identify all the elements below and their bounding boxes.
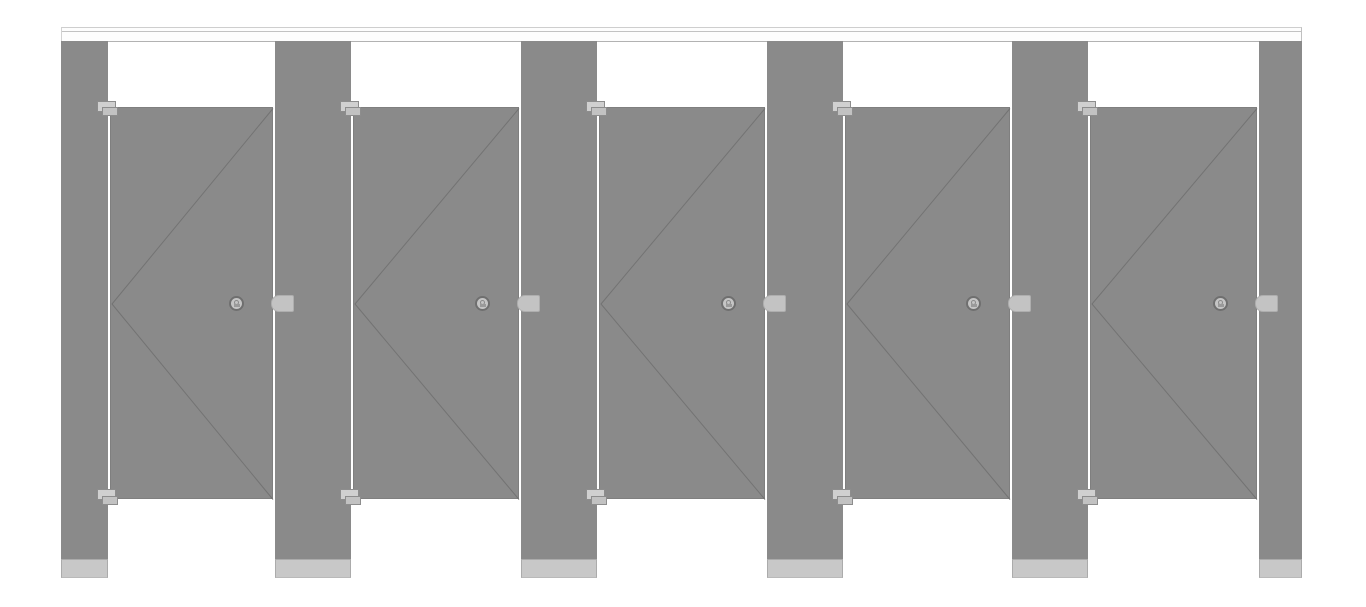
door-hinge-bottom-leaf <box>1082 496 1098 505</box>
headrail-inner-line <box>62 31 1301 32</box>
latch-knob-turn <box>1218 304 1224 307</box>
latch-knob-turn <box>726 304 732 307</box>
pilaster-shoe <box>1012 559 1088 578</box>
latch-keeper <box>1255 295 1278 312</box>
door-hinge-bottom-leaf <box>102 496 118 505</box>
stall-door <box>845 107 1010 499</box>
door-swing-lines <box>600 108 766 500</box>
stall-door <box>110 107 273 499</box>
headrail <box>61 27 1302 42</box>
pilaster-shoe <box>275 559 351 578</box>
pilaster-shoe <box>521 559 597 578</box>
door-latch-knob <box>721 296 736 311</box>
door-hinge-top-leaf <box>345 107 361 116</box>
door-latch-knob <box>229 296 244 311</box>
pilaster-shoe <box>61 559 108 578</box>
stall-door <box>1090 107 1257 499</box>
door-swing-lines <box>111 108 274 500</box>
door-swing-lines <box>846 108 1011 500</box>
pilaster-shoe <box>767 559 843 578</box>
door-hinge-top-leaf <box>1082 107 1098 116</box>
pilaster-shoe <box>1259 559 1302 578</box>
door-latch-knob <box>475 296 490 311</box>
latch-keeper <box>517 295 540 312</box>
door-hinge-bottom-leaf <box>837 496 853 505</box>
door-hinge-top-leaf <box>591 107 607 116</box>
latch-keeper <box>1008 295 1031 312</box>
latch-knob-turn <box>480 304 486 307</box>
stall-door <box>353 107 519 499</box>
latch-knob-turn <box>971 304 977 307</box>
door-latch-knob <box>1213 296 1228 311</box>
latch-keeper <box>763 295 786 312</box>
door-swing-lines <box>1091 108 1258 500</box>
door-swing-lines <box>354 108 520 500</box>
latch-keeper <box>271 295 294 312</box>
door-latch-knob <box>966 296 981 311</box>
door-hinge-bottom-leaf <box>591 496 607 505</box>
latch-knob-turn <box>234 304 240 307</box>
door-hinge-top-leaf <box>837 107 853 116</box>
door-hinge-bottom-leaf <box>345 496 361 505</box>
stall-door <box>599 107 765 499</box>
door-hinge-top-leaf <box>102 107 118 116</box>
elevation-canvas[interactable] <box>0 0 1366 607</box>
